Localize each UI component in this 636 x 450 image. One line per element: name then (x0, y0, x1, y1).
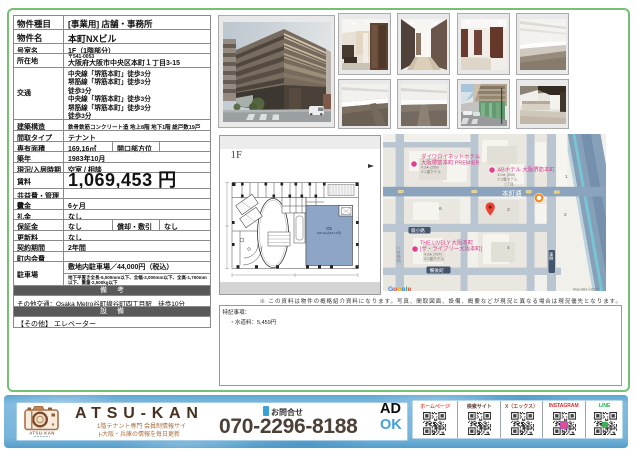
svg-text:本町通: 本町通 (502, 188, 522, 197)
svg-text:THE LIVELY 大阪本町: THE LIVELY 大阪本町 (420, 238, 474, 246)
svg-text:1: 1 (565, 174, 568, 180)
svg-text:169.16㎡(51.17坪): 169.16㎡(51.17坪) (316, 230, 341, 235)
svg-text:堺筋: 堺筋 (547, 252, 554, 260)
svg-text:3つ星ホテル: 3つ星ホテル (424, 256, 444, 261)
svg-text:2: 2 (564, 212, 567, 218)
svg-text:4: 4 (507, 245, 510, 251)
svg-text:3: 3 (507, 207, 510, 213)
svg-text:ATSU-KAN: ATSU-KAN (29, 431, 55, 436)
svg-text:[ザ・ライブリー大阪本町]: [ザ・ライブリー大阪本町] (420, 244, 483, 252)
svg-text:1丁目: 1丁目 (504, 181, 514, 186)
svg-text:4.0★ (255): 4.0★ (255) (497, 173, 515, 177)
svg-text:ダイワロイネットホテル: ダイワロイネットホテル (421, 152, 481, 160)
svg-text:Map data ©2025: Map data ©2025 (573, 287, 598, 291)
svg-text:e: e (407, 286, 411, 292)
svg-text:貸室: 貸室 (325, 226, 331, 231)
svg-text:備後町: 備後町 (429, 267, 444, 274)
svg-text:4.3★ (259): 4.3★ (259) (421, 165, 439, 169)
svg-text:6: 6 (439, 206, 442, 212)
svg-text:3つ星ホテル: 3つ星ホテル (421, 169, 441, 174)
svg-text:三休橋筋: 三休橋筋 (395, 246, 402, 263)
svg-text:2つ星ホテル: 2つ星ホテル (497, 176, 517, 181)
svg-text:4.2★ (797): 4.2★ (797) (424, 252, 442, 256)
svg-text:鍛小路: 鍛小路 (411, 227, 425, 234)
